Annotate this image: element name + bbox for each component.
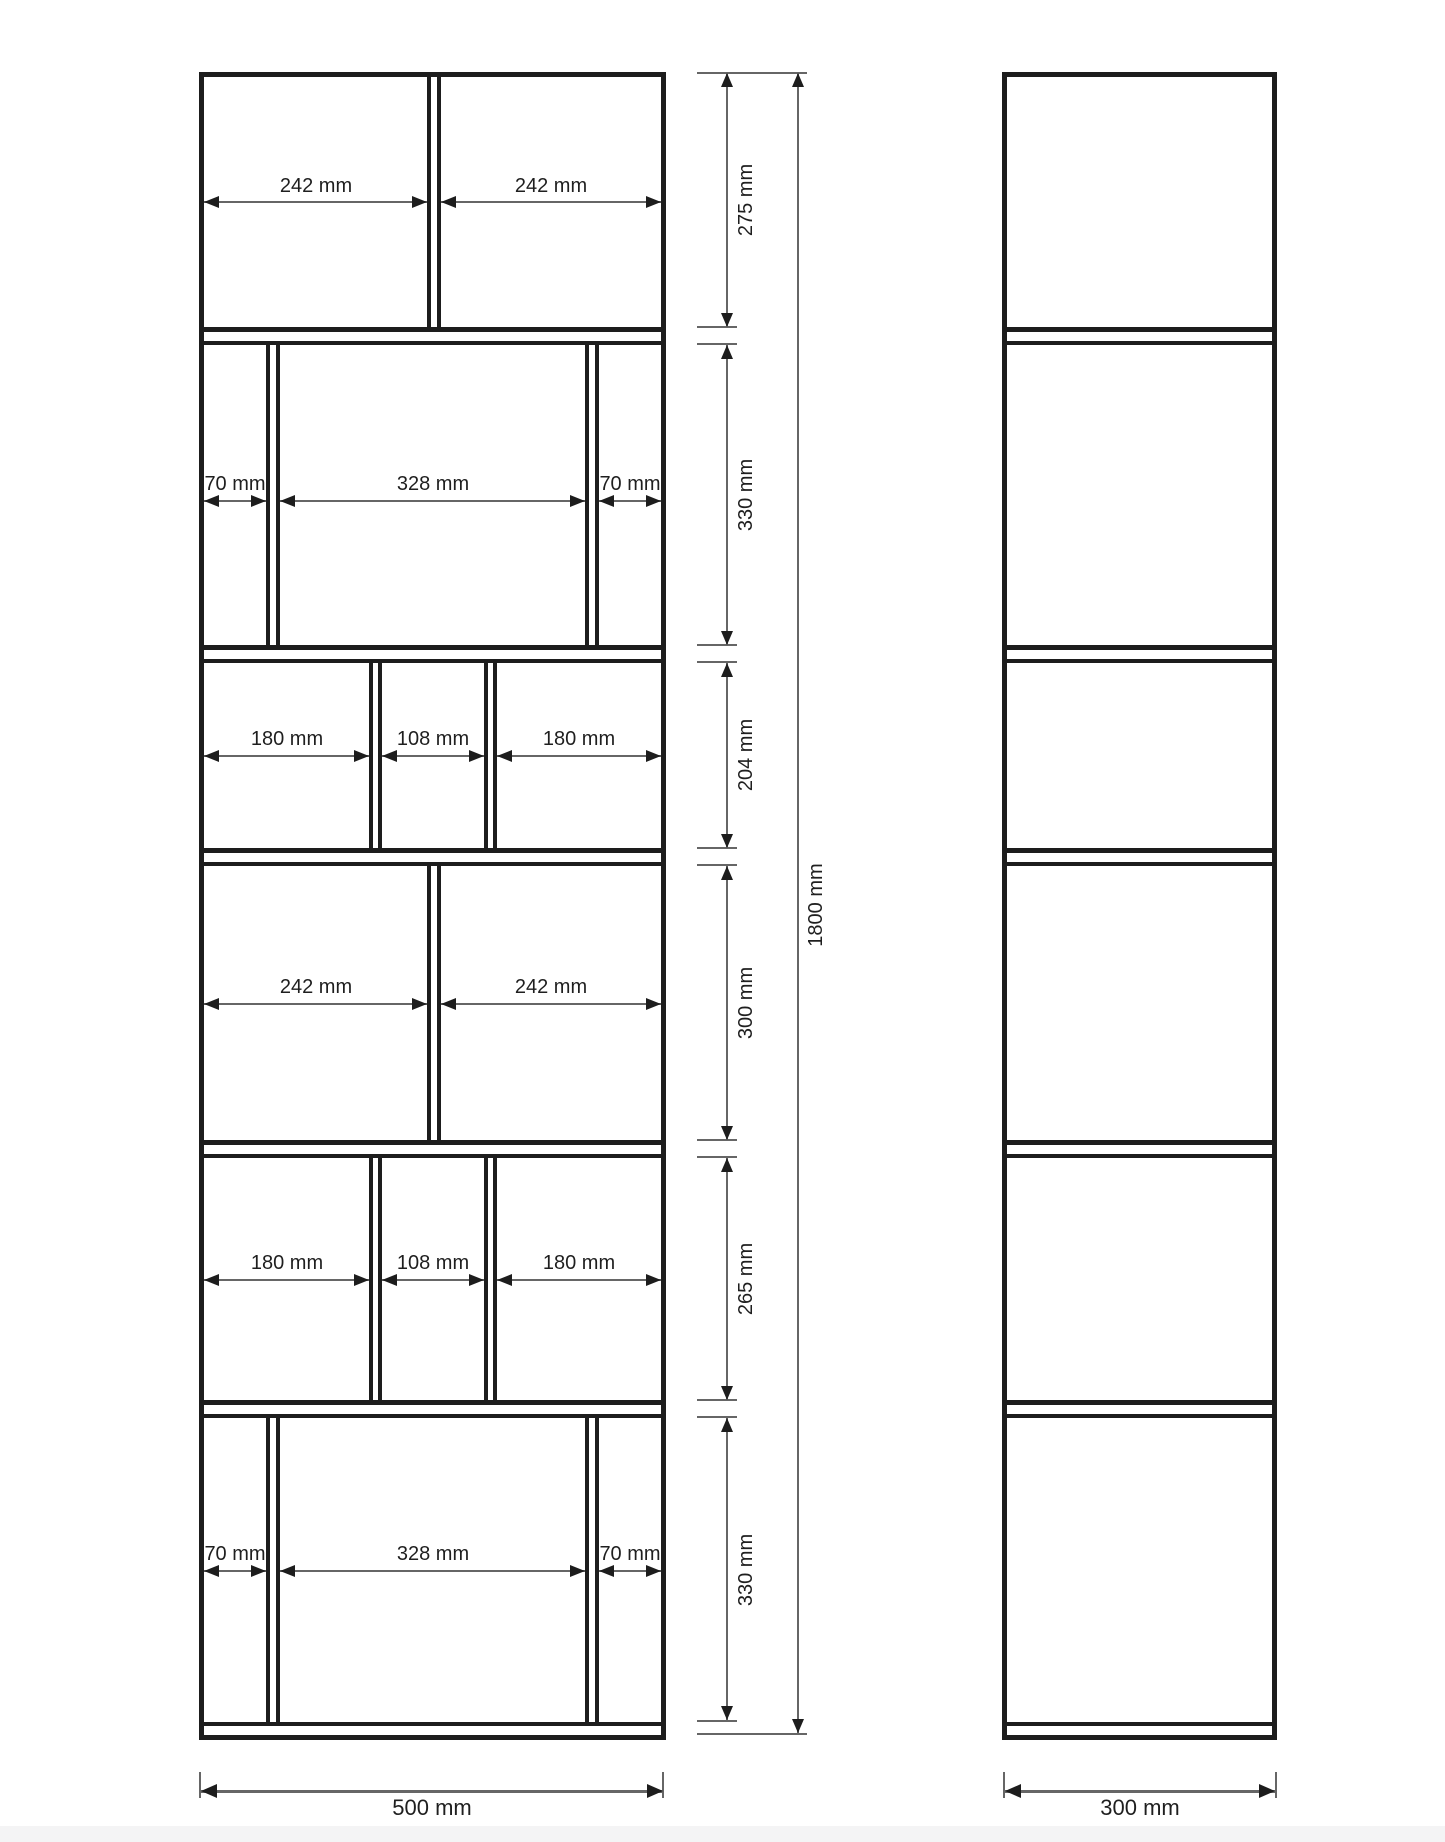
dim-label-vertical: 330 mm — [736, 1534, 756, 1606]
arrow-right-icon — [412, 196, 427, 208]
arrow-down-icon — [792, 1719, 804, 1733]
arrow-right-icon — [647, 1784, 663, 1798]
arrow-right-icon — [354, 750, 369, 762]
arrow-left-icon — [280, 495, 295, 507]
dim-label: 108 mm — [397, 1253, 469, 1273]
arrow-up-icon — [721, 663, 733, 677]
arrow-right-icon — [251, 495, 266, 507]
dimension-line — [280, 1570, 585, 1572]
arrow-left-icon — [204, 495, 219, 507]
dim-label: 328 mm — [397, 474, 469, 494]
dimension-line — [204, 755, 369, 757]
dimension-line — [726, 345, 728, 645]
technical-drawing-canvas: 242 mm 242 mm 70 mm 328 mm 70 mm 180 mm … — [0, 0, 1445, 1842]
arrow-left-icon — [204, 998, 219, 1010]
arrow-down-icon — [721, 1706, 733, 1720]
divider-board — [369, 1158, 382, 1400]
dim-label-vertical: 265 mm — [736, 1243, 756, 1315]
arrow-right-icon — [646, 495, 661, 507]
arrow-left-icon — [201, 1784, 217, 1798]
dim-label-vertical: 204 mm — [736, 719, 756, 791]
arrow-down-icon — [721, 1126, 733, 1140]
arrow-down-icon — [721, 1386, 733, 1400]
dim-label: 180 mm — [251, 729, 323, 749]
divider-board — [585, 1418, 599, 1722]
extension-line — [697, 1733, 807, 1735]
extension-line — [697, 72, 807, 74]
shelf-board-line — [204, 645, 661, 650]
base-board-line — [1007, 1722, 1272, 1726]
arrow-left-icon — [441, 196, 456, 208]
dimension-line — [726, 866, 728, 1140]
shelf-board-line — [1007, 341, 1272, 345]
dim-label: 180 mm — [543, 729, 615, 749]
shelf-board-line — [1007, 645, 1272, 650]
shelf-board-line — [204, 659, 661, 663]
divider-board — [427, 77, 441, 327]
dimension-line — [726, 663, 728, 848]
arrow-right-icon — [646, 1274, 661, 1286]
dimension-line — [441, 1003, 661, 1005]
divider-board — [427, 866, 441, 1140]
dim-label-vertical: 330 mm — [736, 459, 756, 531]
dim-label: 242 mm — [515, 977, 587, 997]
divider-board — [266, 1418, 280, 1722]
divider-board — [369, 663, 382, 848]
dimension-line — [726, 1418, 728, 1720]
divider-board — [585, 345, 599, 645]
arrow-left-icon — [1005, 1784, 1021, 1798]
dim-label: 70 mm — [599, 474, 660, 494]
arrow-down-icon — [721, 834, 733, 848]
shelf-board-line — [1007, 862, 1272, 866]
arrow-left-icon — [599, 1565, 614, 1577]
dim-label-side-width: 300 mm — [1100, 1797, 1179, 1819]
arrow-left-icon — [599, 495, 614, 507]
shelf-board-line — [1007, 1140, 1272, 1145]
arrow-right-icon — [469, 750, 484, 762]
dim-label: 70 mm — [204, 474, 265, 494]
shelf-board-line — [1007, 1400, 1272, 1405]
dim-label-total-height: 1800 mm — [806, 863, 826, 946]
divider-board — [484, 1158, 497, 1400]
arrow-down-icon — [721, 313, 733, 327]
shelf-board-line — [1007, 327, 1272, 332]
arrow-up-icon — [721, 1418, 733, 1432]
shelf-board-line — [1007, 848, 1272, 853]
arrow-left-icon — [382, 750, 397, 762]
arrow-down-icon — [721, 631, 733, 645]
dimension-line — [1005, 1790, 1275, 1793]
arrow-up-icon — [721, 1158, 733, 1172]
arrow-left-icon — [204, 1565, 219, 1577]
dimension-line — [726, 1158, 728, 1400]
base-board-line — [204, 1722, 661, 1726]
arrow-left-icon — [204, 1274, 219, 1286]
shelf-board-line — [204, 1400, 661, 1405]
dimension-line — [201, 1790, 663, 1793]
dim-label: 242 mm — [280, 176, 352, 196]
arrow-right-icon — [469, 1274, 484, 1286]
dim-label-vertical: 300 mm — [736, 967, 756, 1039]
arrow-right-icon — [646, 750, 661, 762]
arrow-up-icon — [792, 73, 804, 87]
arrow-right-icon — [251, 1565, 266, 1577]
dimension-line — [497, 755, 661, 757]
dim-label: 108 mm — [397, 729, 469, 749]
shelf-board-line — [204, 848, 661, 853]
arrow-right-icon — [646, 196, 661, 208]
arrow-right-icon — [354, 1274, 369, 1286]
extension-line — [1275, 1772, 1277, 1798]
arrow-up-icon — [721, 73, 733, 87]
arrow-right-icon — [646, 998, 661, 1010]
arrow-right-icon — [1259, 1784, 1275, 1798]
dimension-line — [441, 201, 661, 203]
dim-label: 70 mm — [599, 1544, 660, 1564]
arrow-right-icon — [646, 1565, 661, 1577]
arrow-left-icon — [204, 196, 219, 208]
dim-label: 180 mm — [543, 1253, 615, 1273]
footer-bar — [0, 1826, 1445, 1842]
arrow-right-icon — [570, 495, 585, 507]
dimension-line — [204, 1003, 427, 1005]
dimension-line — [204, 1279, 369, 1281]
dim-label: 242 mm — [280, 977, 352, 997]
arrow-right-icon — [412, 998, 427, 1010]
shelf-board-line — [1007, 659, 1272, 663]
arrow-left-icon — [497, 1274, 512, 1286]
arrow-left-icon — [497, 750, 512, 762]
shelf-board-line — [1007, 1414, 1272, 1418]
shelf-board-line — [1007, 1154, 1272, 1158]
dimension-line — [497, 1279, 661, 1281]
dim-label: 328 mm — [397, 1544, 469, 1564]
dim-label: 242 mm — [515, 176, 587, 196]
extension-line — [697, 1720, 737, 1722]
arrow-left-icon — [204, 750, 219, 762]
dim-label-total-width: 500 mm — [392, 1797, 471, 1819]
divider-board — [484, 663, 497, 848]
dim-label: 70 mm — [204, 1544, 265, 1564]
shelf-board-line — [204, 1140, 661, 1145]
arrow-left-icon — [441, 998, 456, 1010]
side-view-outline — [1002, 72, 1277, 1740]
arrow-up-icon — [721, 345, 733, 359]
dim-label: 180 mm — [251, 1253, 323, 1273]
dimension-line — [797, 73, 799, 1733]
arrow-right-icon — [570, 1565, 585, 1577]
arrow-up-icon — [721, 866, 733, 880]
arrow-left-icon — [280, 1565, 295, 1577]
shelf-board-line — [204, 1154, 661, 1158]
divider-board — [266, 345, 280, 645]
dimension-line — [204, 201, 427, 203]
shelf-board-line — [204, 327, 661, 332]
arrow-left-icon — [382, 1274, 397, 1286]
dimension-line — [280, 500, 585, 502]
dimension-line — [726, 73, 728, 327]
dim-label-vertical: 275 mm — [736, 164, 756, 236]
